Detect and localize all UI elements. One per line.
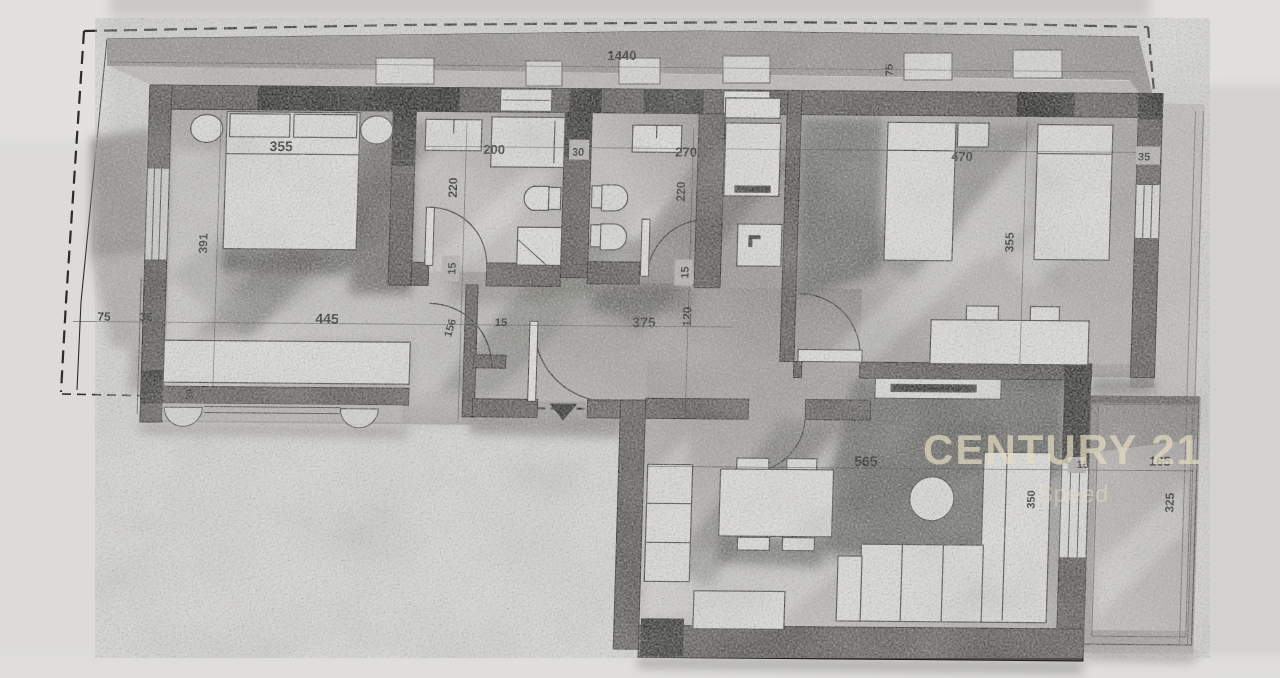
svg-text:CENTURY 21: CENTURY 21 bbox=[923, 426, 1202, 473]
svg-text:Speed: Speed bbox=[1037, 481, 1109, 508]
